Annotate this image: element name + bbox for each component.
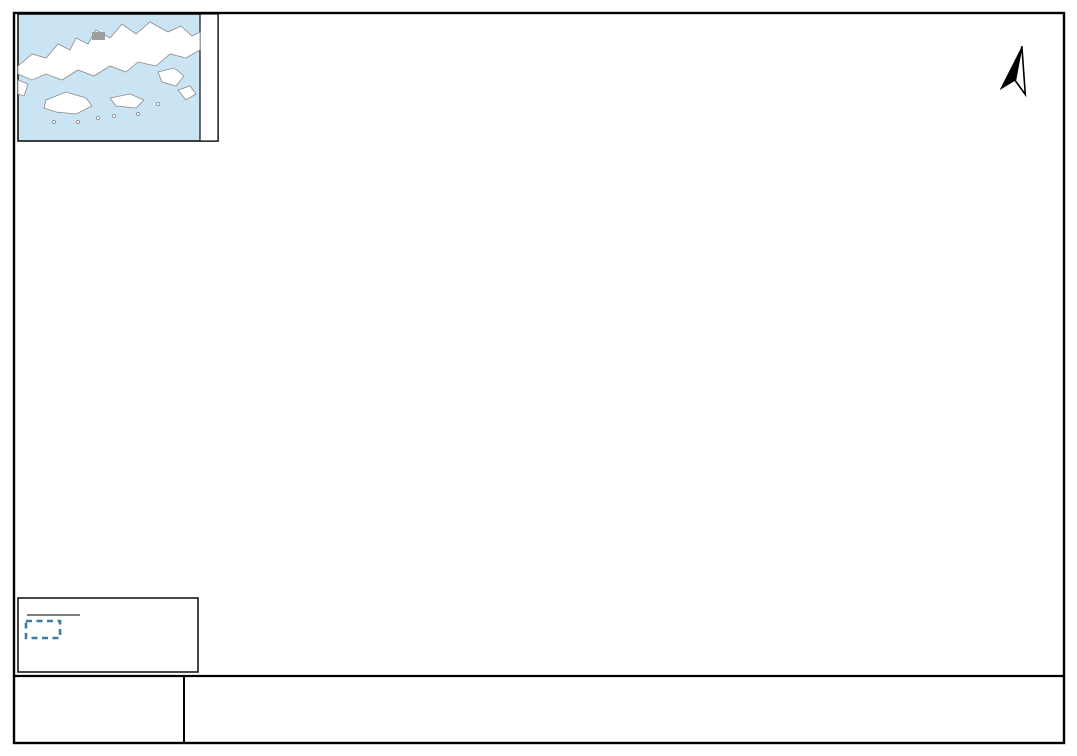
drawing-sheet: { "title_block": { "line1": "Location of… bbox=[0, 0, 1077, 756]
north-arrow bbox=[1000, 44, 1037, 97]
north-arrow-icon bbox=[1000, 44, 1037, 97]
legend-box bbox=[18, 598, 198, 672]
locality-map-inset bbox=[18, 14, 218, 141]
study-area-marker bbox=[92, 32, 105, 40]
map-canvas bbox=[0, 0, 1077, 756]
